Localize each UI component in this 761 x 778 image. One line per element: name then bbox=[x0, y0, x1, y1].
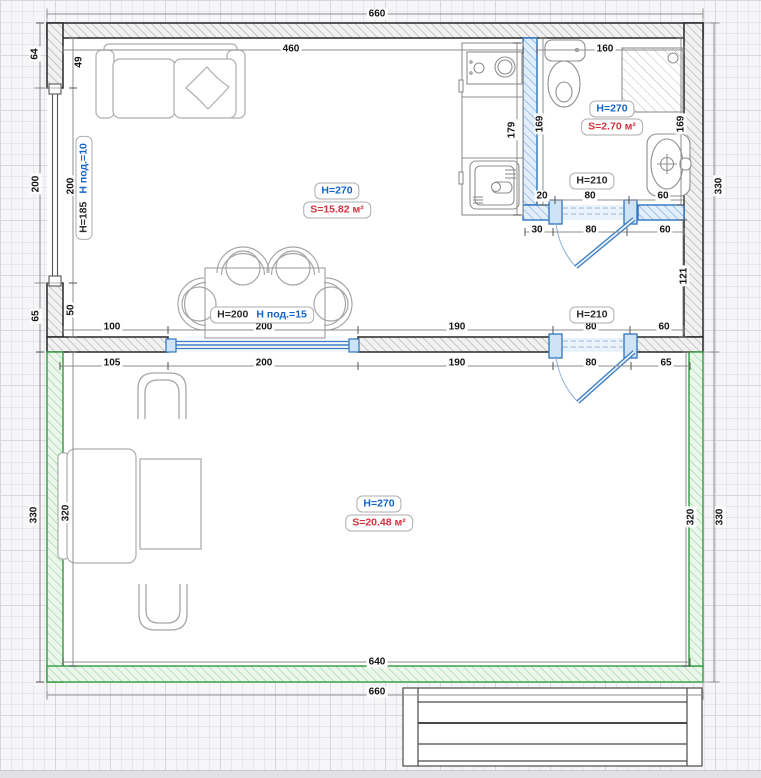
height-value: H=185 bbox=[78, 202, 90, 233]
sill-value: H под.=15 bbox=[256, 309, 307, 321]
dimension-label: 105 bbox=[102, 358, 123, 369]
dimension-label: 49 bbox=[74, 54, 85, 69]
dimension-label: 320 bbox=[686, 507, 697, 528]
dimension-label: 64 bbox=[30, 46, 41, 61]
dimension-label: 50 bbox=[66, 302, 77, 317]
dimension-label: 330 bbox=[29, 505, 40, 526]
dimension-label: 160 bbox=[595, 44, 616, 55]
sill-value: H под.=10 bbox=[78, 143, 90, 194]
area-value: S=20.48 м² bbox=[352, 517, 406, 529]
height-value: H=210 bbox=[576, 309, 607, 321]
room-area-label[interactable]: S=20.48 м² bbox=[345, 515, 413, 532]
dimension-label: 60 bbox=[657, 225, 672, 236]
dimension-label: 640 bbox=[367, 657, 388, 668]
height-value: H=270 bbox=[363, 498, 394, 510]
dimension-label: 320 bbox=[61, 503, 72, 524]
dimension-label: 30 bbox=[529, 225, 544, 236]
dimension-label: 20 bbox=[534, 191, 549, 202]
room-area-label[interactable]: S=2.70 м² bbox=[581, 119, 643, 136]
window-height-label[interactable]: H=185H под.=10 bbox=[76, 136, 93, 240]
dimension-label: 60 bbox=[656, 322, 671, 333]
canvas-bottom-edge bbox=[0, 770, 761, 778]
dimension-label: 660 bbox=[367, 687, 388, 698]
dimension-label: 80 bbox=[583, 358, 598, 369]
door-height-label[interactable]: H=210 bbox=[569, 173, 614, 190]
height-value: H=210 bbox=[576, 175, 607, 187]
dimension-label: 169 bbox=[676, 114, 687, 135]
dimension-label: 65 bbox=[658, 358, 673, 369]
dimension-label: 330 bbox=[715, 507, 726, 528]
floorplan-canvas[interactable]: 6604601606406606449200200655033033032032… bbox=[0, 0, 761, 778]
room-area-label[interactable]: S=15.82 м² bbox=[303, 202, 371, 219]
dimension-label: 60 bbox=[655, 191, 670, 202]
dimension-label: 190 bbox=[447, 358, 468, 369]
door-height-label[interactable]: H=210 bbox=[569, 307, 614, 324]
dimension-label: 65 bbox=[31, 308, 42, 323]
room-height-label[interactable]: H=270 bbox=[589, 101, 634, 118]
dimension-label: 80 bbox=[582, 191, 597, 202]
dimension-label: 190 bbox=[447, 322, 468, 333]
dimension-label: 200 bbox=[254, 358, 275, 369]
dimension-label: 330 bbox=[714, 176, 725, 197]
area-value: S=15.82 м² bbox=[310, 204, 364, 216]
dimension-label: 179 bbox=[507, 120, 518, 141]
dimension-label: 121 bbox=[679, 266, 690, 287]
dimension-label: 100 bbox=[102, 322, 123, 333]
room-height-label[interactable]: H=270 bbox=[356, 496, 401, 513]
dimension-label: 200 bbox=[31, 174, 42, 195]
dimension-label: 80 bbox=[583, 225, 598, 236]
height-value: H=200 bbox=[217, 309, 248, 321]
height-value: H=270 bbox=[596, 103, 627, 115]
height-value: H=270 bbox=[321, 185, 352, 197]
dimension-label: 460 bbox=[281, 44, 302, 55]
dimension-label: 169 bbox=[535, 114, 546, 135]
dimension-label: 660 bbox=[367, 9, 388, 20]
room-height-label[interactable]: H=270 bbox=[314, 183, 359, 200]
window-height-label[interactable]: H=200H под.=15 bbox=[210, 307, 314, 324]
area-value: S=2.70 м² bbox=[588, 121, 636, 133]
